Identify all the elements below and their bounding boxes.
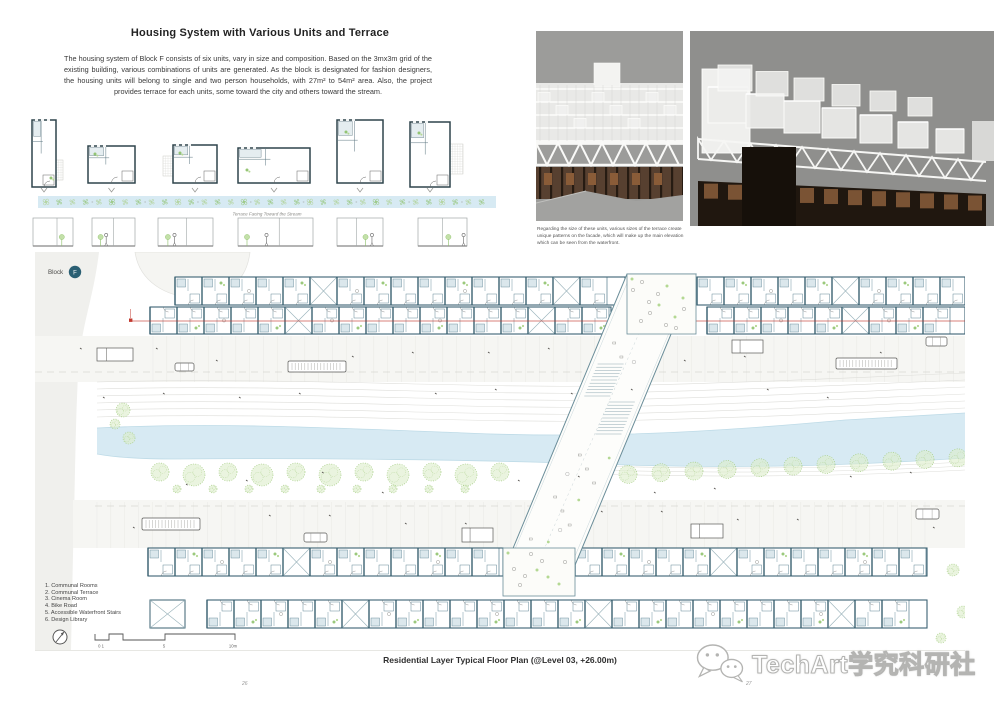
page-number-left: 26	[242, 681, 248, 687]
stream-band	[38, 196, 496, 208]
legend-item: 4. Bike Road	[45, 603, 205, 610]
block-label: Block	[48, 269, 64, 276]
svg-text:0 1: 0 1	[98, 644, 104, 649]
terrace-label: Terrace Facing Toward the Stream	[233, 212, 302, 217]
legend-item: 1. Communal Rooms	[45, 583, 205, 590]
legend-item: 5. Accessible Waterfront Stairs	[45, 610, 205, 617]
road-top	[35, 336, 965, 382]
legend-item: 6. Design Library	[45, 617, 205, 624]
plan-legend: 1. Communal Rooms2. Communal Terrace3. C…	[45, 583, 205, 623]
watermark-text: TechArt学究科研社	[752, 645, 976, 681]
unit-diagrams-figure: Terrace Facing Toward the Stream	[30, 112, 510, 252]
photo-caption: Regarding the size of these units, vario…	[537, 226, 689, 248]
unit-sections	[33, 218, 467, 246]
model-photo-perspective	[690, 31, 994, 226]
page-title: Housing System with Various Units and Te…	[40, 27, 480, 39]
svg-text:10m: 10m	[229, 644, 238, 649]
model-photo-front	[536, 31, 683, 221]
block-letter: F	[73, 270, 77, 276]
legend-item: 2. Communal Terrace	[45, 590, 205, 597]
legend-item: 3. Cinema Room	[45, 596, 205, 603]
watermark: TechArt学究科研社	[693, 640, 976, 686]
wechat-icon	[693, 640, 747, 686]
north-arrow	[53, 630, 67, 644]
intro-paragraph: The housing system of Block F consists o…	[64, 54, 432, 98]
down-arrows	[41, 188, 433, 192]
unit-floor-plans	[32, 120, 463, 187]
